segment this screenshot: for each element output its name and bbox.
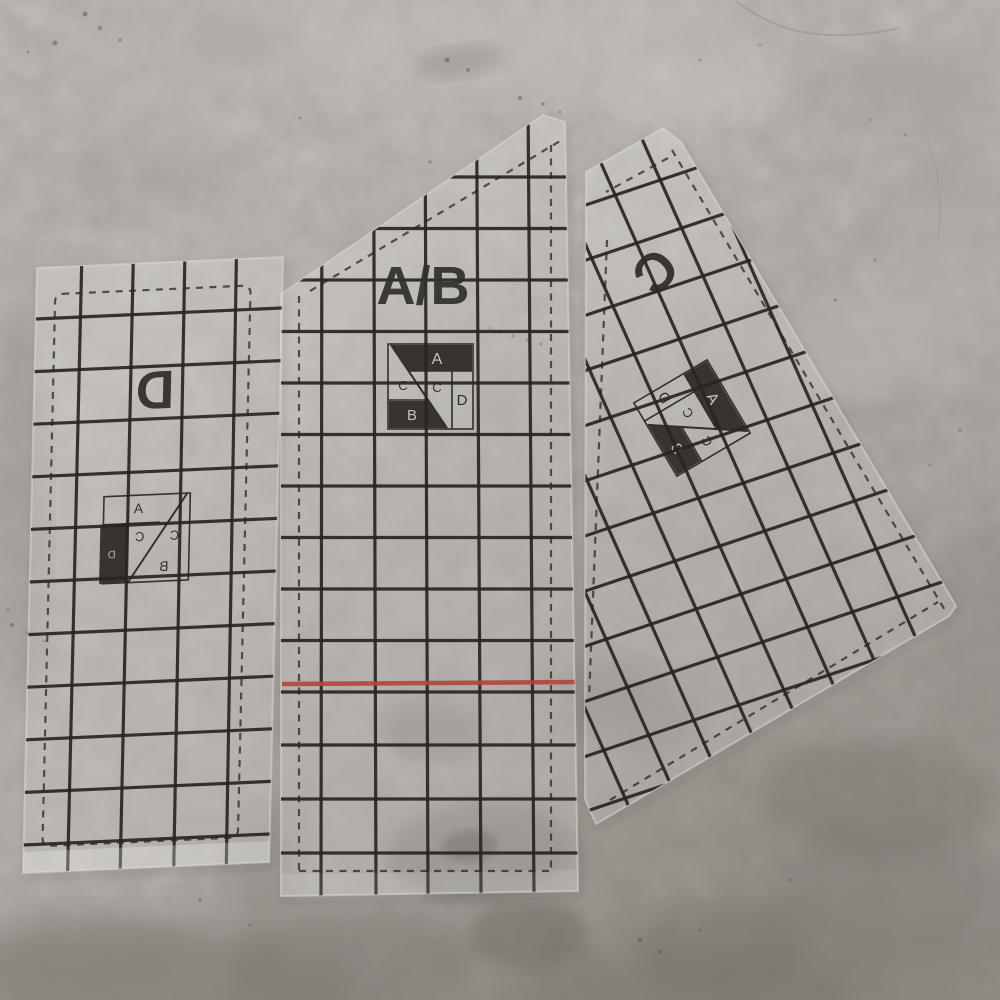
svg-text:B: B (159, 558, 169, 574)
svg-text:C: C (135, 529, 145, 544)
svg-text:B: B (407, 407, 417, 424)
svg-text:C: C (170, 527, 180, 542)
svg-text:D: D (135, 360, 175, 422)
svg-text:D: D (107, 549, 115, 561)
svg-text:D: D (457, 392, 468, 409)
svg-text:A: A (133, 500, 143, 516)
svg-text:C: C (398, 378, 407, 393)
svg-text:A: A (432, 351, 443, 368)
svg-text:A/B: A/B (377, 256, 470, 316)
